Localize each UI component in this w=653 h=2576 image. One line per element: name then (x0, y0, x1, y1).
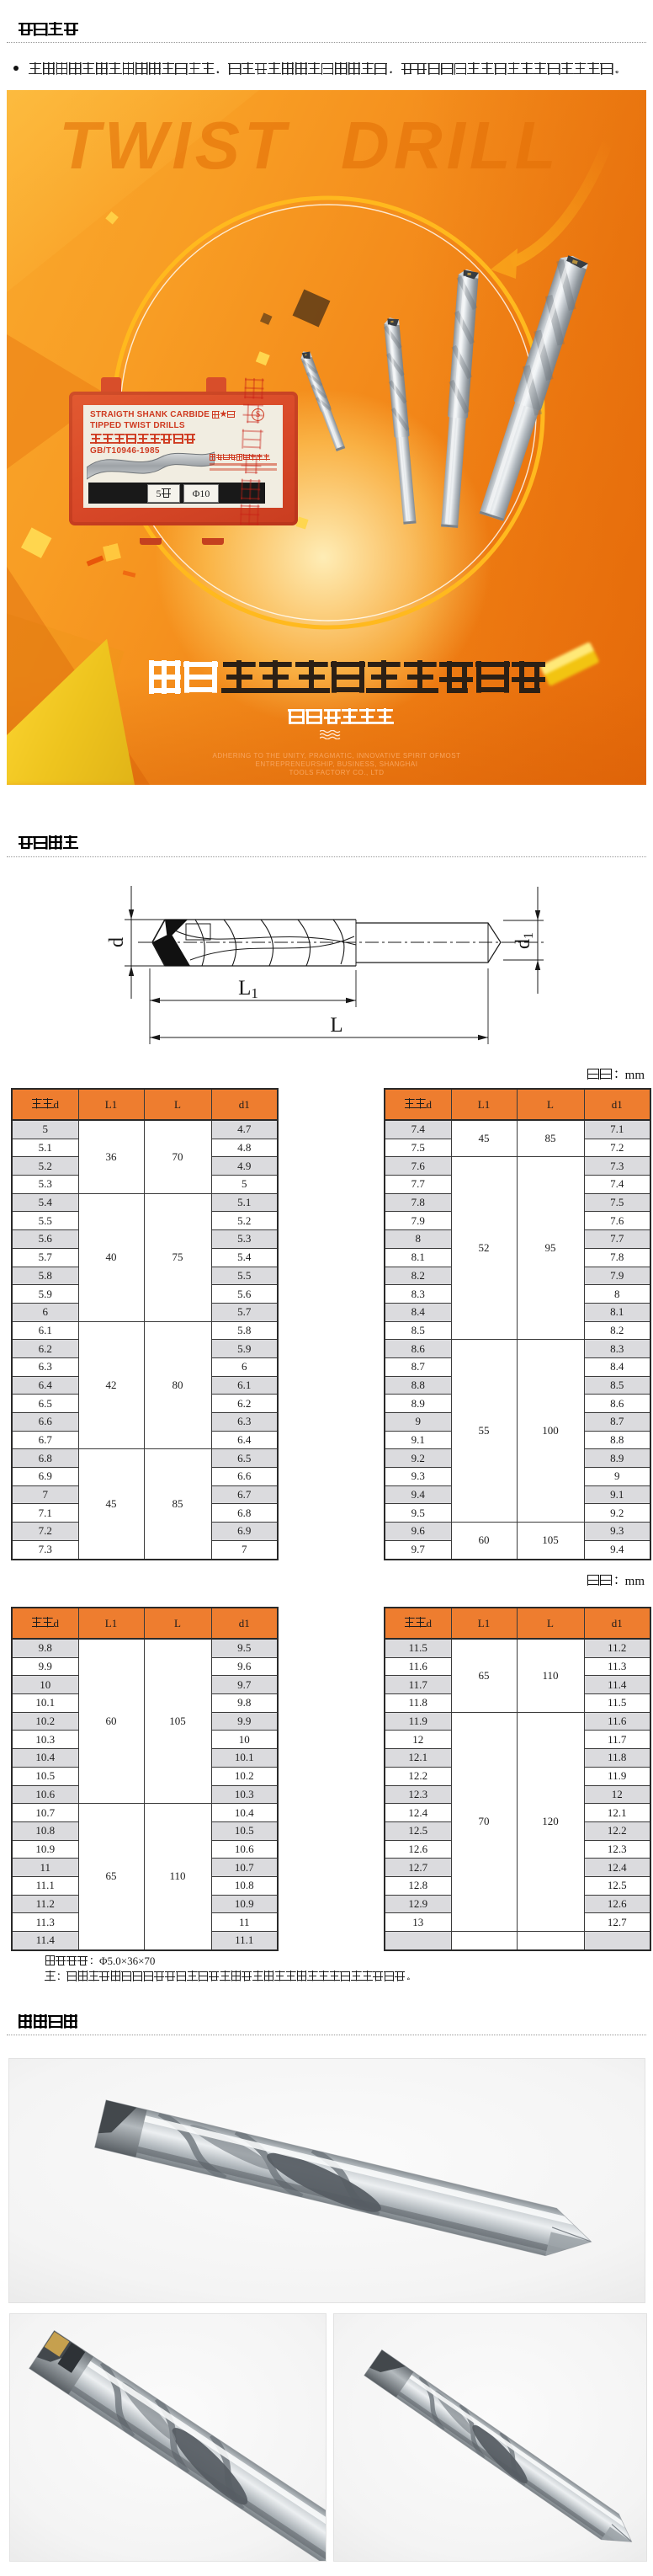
svg-text:L: L (330, 1014, 342, 1037)
svg-text:d1: d1 (512, 932, 536, 949)
svg-text:d: d (106, 937, 128, 947)
svg-text:L1: L1 (238, 977, 258, 1001)
